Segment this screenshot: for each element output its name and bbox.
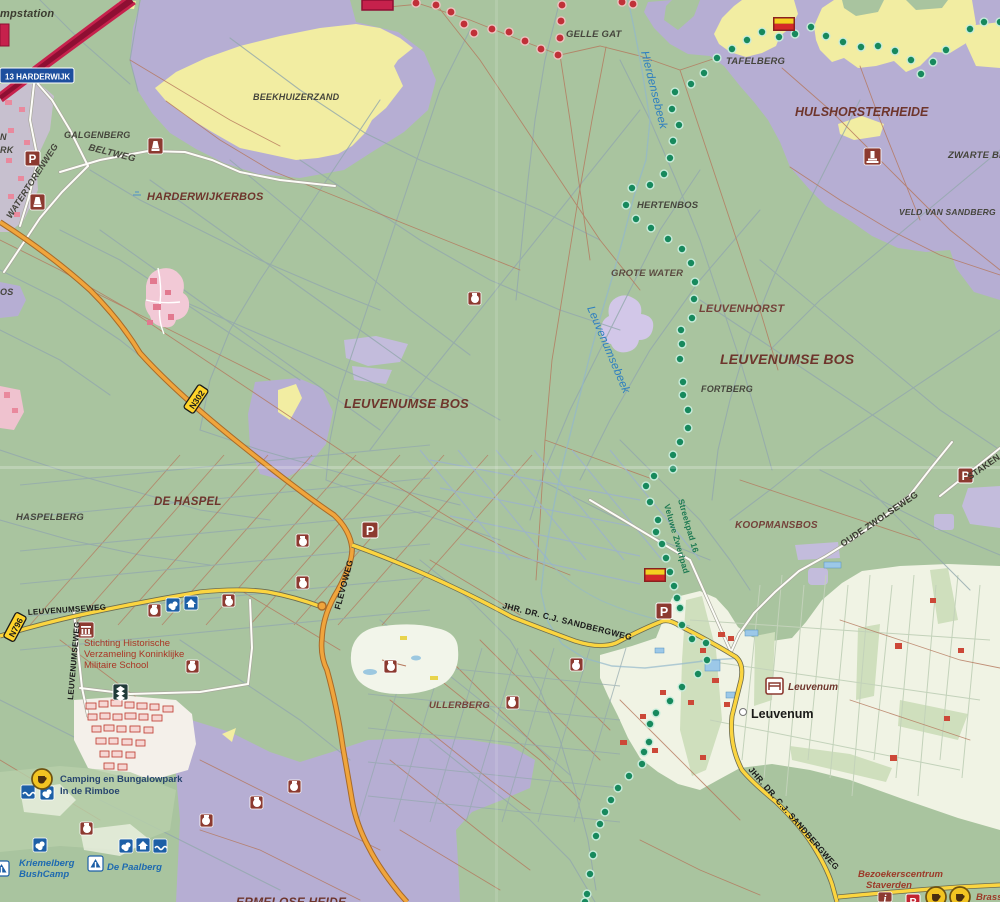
- svg-text:ZWARTE BERG: ZWARTE BERG: [947, 150, 1000, 161]
- svg-text:LEUVENHORST: LEUVENHORST: [699, 303, 785, 315]
- svg-text:OS: OS: [0, 287, 13, 297]
- svg-text:Camping en Bungalowpark: Camping en Bungalowpark: [60, 774, 183, 785]
- svg-text:HARDERWIJKERBOS: HARDERWIJKERBOS: [147, 191, 264, 203]
- svg-text:RK: RK: [0, 145, 15, 155]
- svg-text:De Paalberg: De Paalberg: [107, 862, 162, 873]
- svg-text:P: P: [909, 896, 916, 902]
- svg-text:HERTENBOS: HERTENBOS: [637, 200, 699, 211]
- svg-text:KOOPMANSBOS: KOOPMANSBOS: [735, 520, 818, 531]
- svg-text:Kriemelberg: Kriemelberg: [19, 858, 75, 869]
- svg-text:Leuvenum: Leuvenum: [788, 682, 838, 693]
- svg-text:Brasse: Brasse: [976, 892, 1000, 902]
- svg-text:GROTE WATER: GROTE WATER: [611, 268, 683, 279]
- svg-text:Stichting Historische: Stichting Historische: [84, 638, 170, 649]
- svg-text:P: P: [366, 524, 374, 538]
- svg-text:LEUVENUMSE BOS: LEUVENUMSE BOS: [720, 351, 855, 367]
- svg-text:In de Rimboe: In de Rimboe: [60, 786, 120, 797]
- svg-text:ULLERBERG: ULLERBERG: [429, 700, 490, 711]
- svg-text:P: P: [29, 154, 37, 166]
- svg-text:ERMELOSE HEIDE: ERMELOSE HEIDE: [236, 895, 347, 902]
- svg-text:P: P: [660, 605, 668, 619]
- svg-text:BushCamp: BushCamp: [19, 869, 69, 880]
- svg-text:HASPELBERG: HASPELBERG: [16, 512, 84, 523]
- svg-text:Leuvenum: Leuvenum: [751, 707, 814, 721]
- svg-text:FORTBERG: FORTBERG: [701, 384, 753, 394]
- svg-text:LEUVENUMSE BOS: LEUVENUMSE BOS: [344, 396, 469, 411]
- svg-text:Bezoekerscentrum: Bezoekerscentrum: [858, 869, 944, 880]
- svg-text:BEEKHUIZERZAND: BEEKHUIZERZAND: [253, 92, 340, 102]
- svg-text:mpstation: mpstation: [0, 8, 54, 20]
- svg-text:Staverden: Staverden: [866, 880, 912, 891]
- svg-text:13 HARDERWIJK: 13 HARDERWIJK: [5, 73, 70, 82]
- svg-text:DE HASPEL: DE HASPEL: [154, 496, 222, 508]
- svg-text:GALGENBERG: GALGENBERG: [64, 130, 131, 140]
- svg-text:N: N: [0, 132, 7, 142]
- svg-text:HULSHORSTERHEIDE: HULSHORSTERHEIDE: [795, 105, 929, 119]
- svg-text:GELLE GAT: GELLE GAT: [566, 29, 622, 40]
- svg-text:TAFELBERG: TAFELBERG: [726, 56, 786, 67]
- svg-text:Verzameling Koninklijke: Verzameling Koninklijke: [84, 649, 184, 660]
- svg-text:VELD VAN SANDBERG: VELD VAN SANDBERG: [899, 207, 996, 217]
- svg-text:Militaire School: Militaire School: [84, 660, 148, 671]
